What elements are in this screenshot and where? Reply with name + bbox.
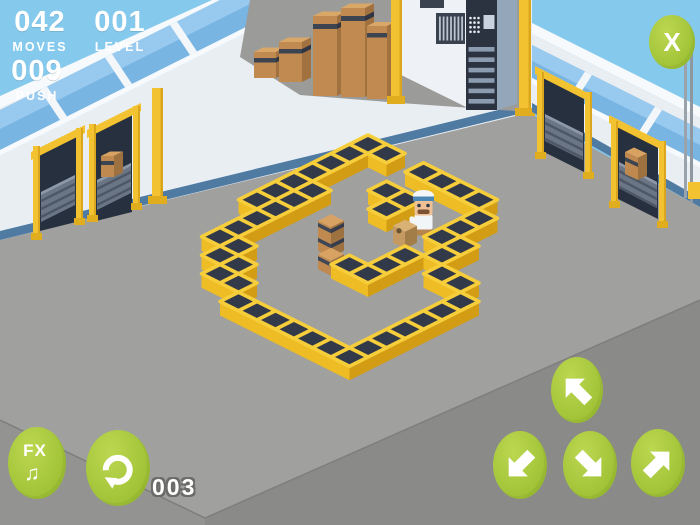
- push-value: 009: [4, 57, 70, 86]
- conveyor-box: [101, 152, 123, 178]
- moves-label: MOVES: [4, 41, 76, 54]
- moves-counter: 042 MOVES: [4, 8, 76, 54]
- fx-button-label: FX: [23, 441, 47, 461]
- mezzanine-box: [367, 22, 395, 99]
- level-counter: 001 LEVEL: [84, 8, 156, 54]
- level-label: LEVEL: [84, 41, 156, 54]
- move-up-left-button[interactable]: [551, 357, 603, 423]
- mezzanine-box: [279, 38, 311, 83]
- wall-pipe: [684, 46, 687, 198]
- push-counter: 009 PUSH: [4, 57, 70, 103]
- fx-sound-button[interactable]: FX ♫: [8, 427, 66, 499]
- move-down-right-button[interactable]: [563, 431, 617, 499]
- undo-arrow-icon: [95, 443, 141, 493]
- wall-junction-box: [688, 182, 700, 199]
- music-note-icon: ♫: [24, 462, 40, 486]
- arrow-down-left-icon: [500, 445, 540, 485]
- arrow-up-right-icon: [638, 443, 678, 483]
- arrow-up-left-icon: [557, 370, 597, 410]
- move-down-left-button[interactable]: [493, 431, 547, 499]
- moves-value: 042: [4, 8, 76, 37]
- undo-button[interactable]: [86, 430, 150, 506]
- vent-grille-icon: [436, 13, 465, 44]
- push-label: PUSH: [4, 90, 70, 103]
- close-button[interactable]: X: [649, 15, 695, 69]
- rack-screen: [484, 15, 495, 29]
- control-panel-rack: [466, 0, 517, 110]
- wall-pipe: [690, 52, 693, 202]
- conveyor-box: [625, 148, 647, 181]
- game-screen: 042 MOVES 001 LEVEL 009 PUSH X FX ♫ 003: [0, 0, 700, 525]
- undo-count: 003: [152, 474, 196, 501]
- close-button-label: X: [663, 27, 680, 58]
- level-value: 001: [84, 8, 156, 37]
- arrow-down-right-icon: [570, 445, 610, 485]
- small-vent-icon: [420, 0, 444, 8]
- move-up-right-button[interactable]: [631, 429, 685, 497]
